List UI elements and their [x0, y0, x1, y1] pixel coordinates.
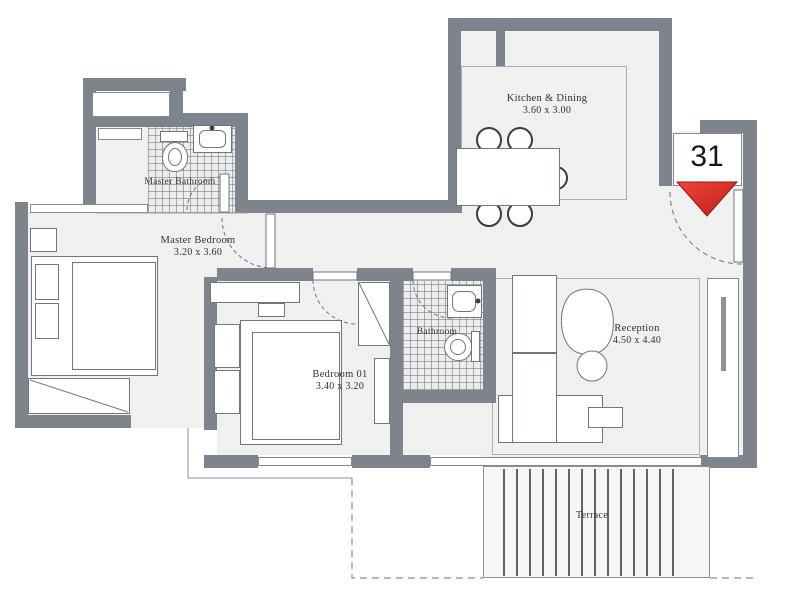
- bedroom01-label: Bedroom 01 3.40 x 3.20: [260, 368, 420, 394]
- sink-basin-icon: [452, 291, 476, 312]
- wall-bedroom01-top-left: [217, 268, 313, 281]
- master-bathroom-name: Master Bathroom: [130, 177, 230, 189]
- master-bedroom-dims: 3.20 x 3.60: [118, 247, 278, 260]
- reception-label: Reception 4.50 x 4.40: [557, 322, 717, 348]
- sofa-left-back: [512, 275, 557, 353]
- master-wardrobe: [28, 378, 130, 414]
- wall-masterbedroom-left: [15, 202, 28, 428]
- wall-bathroom-top-right: [451, 268, 496, 281]
- wall-bottom-left-piece: [204, 455, 258, 468]
- toilet-seat-icon: [450, 339, 466, 355]
- wall-hall-top: [248, 200, 462, 213]
- wall-kitchen-top: [448, 18, 672, 31]
- wall-bedroom01-top-right: [357, 268, 413, 281]
- wall-bathroom-right: [483, 281, 496, 403]
- wall-right-outer: [743, 128, 757, 468]
- bathroom-label: Bathroom: [397, 327, 477, 339]
- unit-number: 31: [672, 140, 742, 174]
- b01-wardrobe: [358, 282, 390, 346]
- sofa-left-seat: [512, 353, 557, 443]
- kitchen-dims: 3.60 x 3.00: [467, 105, 627, 118]
- pillow: [35, 264, 59, 300]
- coffee-table: [588, 407, 623, 428]
- terrace-label: Terrace: [532, 510, 652, 523]
- wall-masterbath-right: [235, 113, 248, 213]
- pillow: [35, 303, 59, 339]
- bathroom-name: Bathroom: [397, 327, 477, 339]
- master-bedroom-window: [30, 204, 148, 213]
- bedroom01-window: [258, 457, 352, 466]
- wall-bottom-mid-piece: [352, 455, 430, 468]
- reception-name: Reception: [557, 322, 717, 335]
- kitchen-label: Kitchen & Dining 3.60 x 3.00: [467, 92, 627, 118]
- wall-kitchen-right: [659, 18, 672, 186]
- bedroom01-dims: 3.40 x 3.20: [260, 381, 420, 394]
- wall-masterbedroom-bottom: [15, 415, 131, 428]
- floor-plan: Kitchen & Dining 3.60 x 3.00 Master Bath…: [0, 0, 790, 600]
- pillow: [214, 324, 240, 368]
- reception-sliding-window: [430, 457, 702, 466]
- master-bed-duvet: [72, 262, 156, 370]
- master-bedroom-label: Master Bedroom 3.20 x 3.60: [118, 234, 278, 260]
- b01-drawer: [258, 303, 285, 317]
- bedroom01-name: Bedroom 01: [260, 368, 420, 381]
- balcony-window: [92, 92, 170, 117]
- master-bathroom-label: Master Bathroom: [130, 177, 230, 189]
- dining-table: [456, 148, 560, 206]
- b01-dresser: [210, 282, 300, 303]
- toilet-seat-icon: [168, 148, 182, 166]
- sink-basin-icon: [199, 130, 226, 148]
- terrace-name: Terrace: [532, 510, 652, 523]
- master-bedroom-name: Master Bedroom: [118, 234, 278, 247]
- tv-niche: [707, 278, 739, 458]
- reception-dims: 4.50 x 4.40: [557, 335, 717, 348]
- pillow: [214, 370, 240, 414]
- terrace-dashed-boundary: [352, 478, 483, 578]
- wall-kitchen-stub: [496, 31, 505, 66]
- kitchen-name: Kitchen & Dining: [467, 92, 627, 105]
- nightstand: [30, 228, 57, 252]
- toilet-tank-icon: [160, 131, 188, 142]
- terrace-decking-stripes: [503, 469, 685, 576]
- closet-shelf: [98, 128, 142, 140]
